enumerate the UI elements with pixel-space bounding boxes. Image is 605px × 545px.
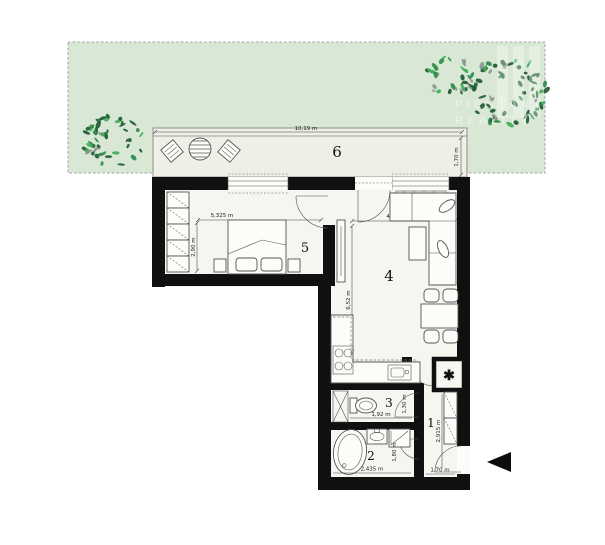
wardrobe — [167, 192, 189, 272]
chair — [424, 289, 439, 302]
watermark-line1: PIEŠŤANY — [455, 98, 545, 111]
dimension-label: 1,92 m — [371, 412, 390, 418]
hall-wardrobe — [444, 392, 457, 444]
room-6-label: 6 — [332, 143, 342, 161]
chair — [424, 330, 439, 343]
tv-panel — [337, 220, 345, 282]
dimension-label: 1,70 m — [454, 147, 460, 166]
nightstand — [214, 259, 226, 272]
coffee-table — [409, 227, 426, 260]
chair — [443, 289, 458, 302]
terrace-table — [188, 138, 212, 160]
room-3-label: 3 — [385, 396, 393, 410]
room-5-label: 5 — [301, 241, 309, 256]
entrance-arrow-icon — [487, 452, 511, 472]
toilet — [350, 398, 377, 413]
dimension-label: 1,70 m — [430, 468, 449, 474]
dimension-label: 2,915 m — [436, 420, 442, 443]
dimension-label: 1,30 m — [402, 394, 408, 413]
dimension-label: 2,90 m — [191, 237, 197, 256]
watermark-line2: REALITY — [455, 115, 532, 127]
bed — [228, 220, 286, 274]
dimension-label: 2,435 m — [361, 467, 384, 473]
room-4-label: 4 — [384, 267, 394, 285]
room-1-label: 1 — [427, 416, 435, 430]
dimension-label: 1,80 m — [392, 442, 398, 461]
nightstand — [288, 259, 300, 272]
utility-shaft: ✱ — [434, 359, 464, 390]
chair — [443, 330, 458, 343]
dimension-label: 6,52 m — [346, 290, 352, 309]
dimension-label: 10,19 m — [295, 126, 318, 132]
dining-table — [421, 304, 458, 328]
terrace: 10,19 m 1,70 m 6 — [153, 126, 467, 177]
shaft-asterisk-icon: ✱ — [443, 368, 455, 384]
dimension-label: 5,325 m — [211, 213, 234, 219]
room-2-label: 2 — [367, 449, 375, 463]
floor-plan: PIEŠŤANY REALITY 10,19 m 1,70 m 6 — [0, 0, 605, 545]
washbasin — [367, 429, 387, 444]
